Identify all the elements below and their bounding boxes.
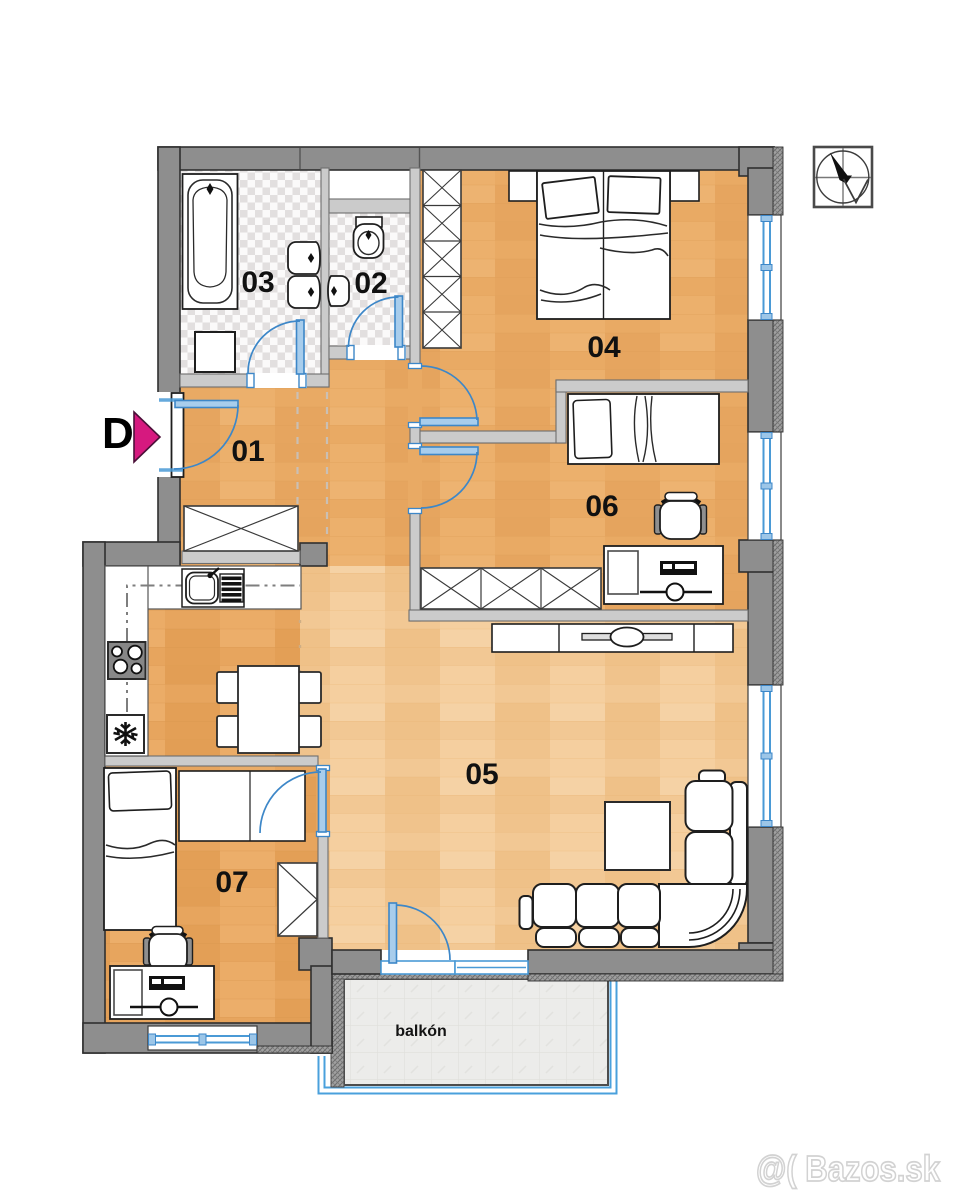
svg-text:@( Bazos.sk: @( Bazos.sk [756,1148,941,1189]
svg-text:D: D [102,409,134,458]
svg-text:01: 01 [231,435,264,468]
svg-text:05: 05 [465,758,498,791]
svg-text:03: 03 [241,266,274,299]
svg-text:balkón: balkón [395,1023,447,1040]
svg-text:07: 07 [215,866,248,899]
svg-text:06: 06 [585,490,618,523]
svg-text:02: 02 [354,267,387,300]
svg-text:04: 04 [587,331,621,364]
